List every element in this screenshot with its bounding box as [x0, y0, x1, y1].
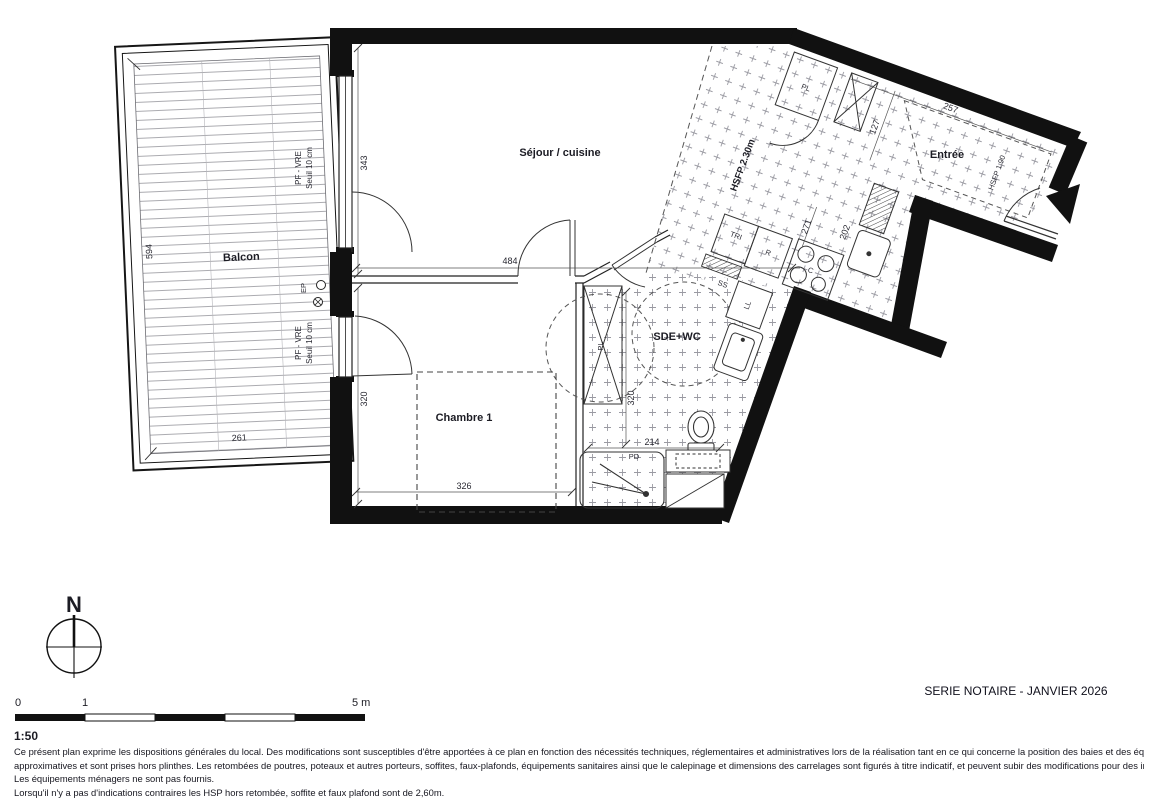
compass-north-label: N — [66, 592, 82, 617]
dim-balcon-width: 261 — [231, 432, 246, 443]
label-closet-chambre: PL — [596, 341, 605, 350]
plan-page: 594 261 Balcon PF - VRE Seuil 10 cm PF -… — [0, 0, 1152, 800]
door-chambre — [518, 220, 575, 276]
dim-sde-height: 320 — [626, 390, 636, 405]
legal-line-1: Ce présent plan exprime les dispositions… — [14, 745, 1144, 759]
scale-ratio: 1:50 — [14, 729, 38, 743]
label-ep: EP — [299, 283, 308, 293]
floor-plan-svg: 594 261 Balcon PF - VRE Seuil 10 cm PF -… — [0, 0, 1152, 800]
scale-tick-0: 0 — [15, 697, 21, 709]
legal-line-4: Lorsqu'il n'y a pas d'indications contra… — [14, 786, 1144, 800]
ep-pipe-icon — [317, 281, 326, 290]
label-seuil-1: Seuil 10 cm — [305, 147, 314, 189]
window-chambre — [339, 317, 352, 377]
label-shower-door: PD — [629, 452, 640, 461]
dim-chambre-height: 320 — [359, 391, 369, 406]
dim-balcon-height: 594 — [144, 244, 155, 259]
vanity-unit — [666, 450, 730, 508]
label-chambre: Chambre 1 — [436, 412, 493, 424]
label-pf-vre-1: PF - VRE — [294, 151, 303, 185]
legal-text: Ce présent plan exprime les dispositions… — [14, 745, 1144, 800]
label-sde: SDE+WC — [653, 331, 700, 343]
dim-sejour-width: 484 — [502, 256, 517, 266]
dim-sejour-height: 343 — [359, 155, 369, 170]
scale-tick-1: 1 — [82, 697, 88, 709]
dim-chambre-width: 326 — [456, 481, 471, 491]
label-entree: Entrée — [930, 149, 964, 161]
scale-bar: 0 1 5 m 1:50 — [14, 697, 370, 743]
door-balcon-chambre — [352, 316, 412, 376]
door-balcon-sejour — [352, 192, 412, 252]
legal-line-2: approximatives et sont prises hors plint… — [14, 759, 1144, 773]
scale-tick-5: 5 m — [352, 697, 370, 709]
legal-line-3: Les équipements ménagers ne sont pas fou… — [14, 772, 1144, 786]
window-sejour — [339, 76, 352, 248]
ep-drain-icon — [314, 298, 323, 307]
label-balcon: Balcon — [223, 251, 260, 265]
bed-dashed — [417, 372, 556, 512]
label-seuil-2: Seuil 10 cm — [305, 322, 314, 364]
series-title: SERIE NOTAIRE - JANVIER 2026 — [880, 684, 1152, 698]
north-compass: N — [46, 592, 102, 678]
label-pf-vre-2: PF - VRE — [294, 326, 303, 360]
balcony-group: 594 261 Balcon — [115, 37, 353, 470]
dim-sde-width: 214 — [644, 437, 659, 447]
label-sejour: Séjour / cuisine — [519, 147, 600, 159]
